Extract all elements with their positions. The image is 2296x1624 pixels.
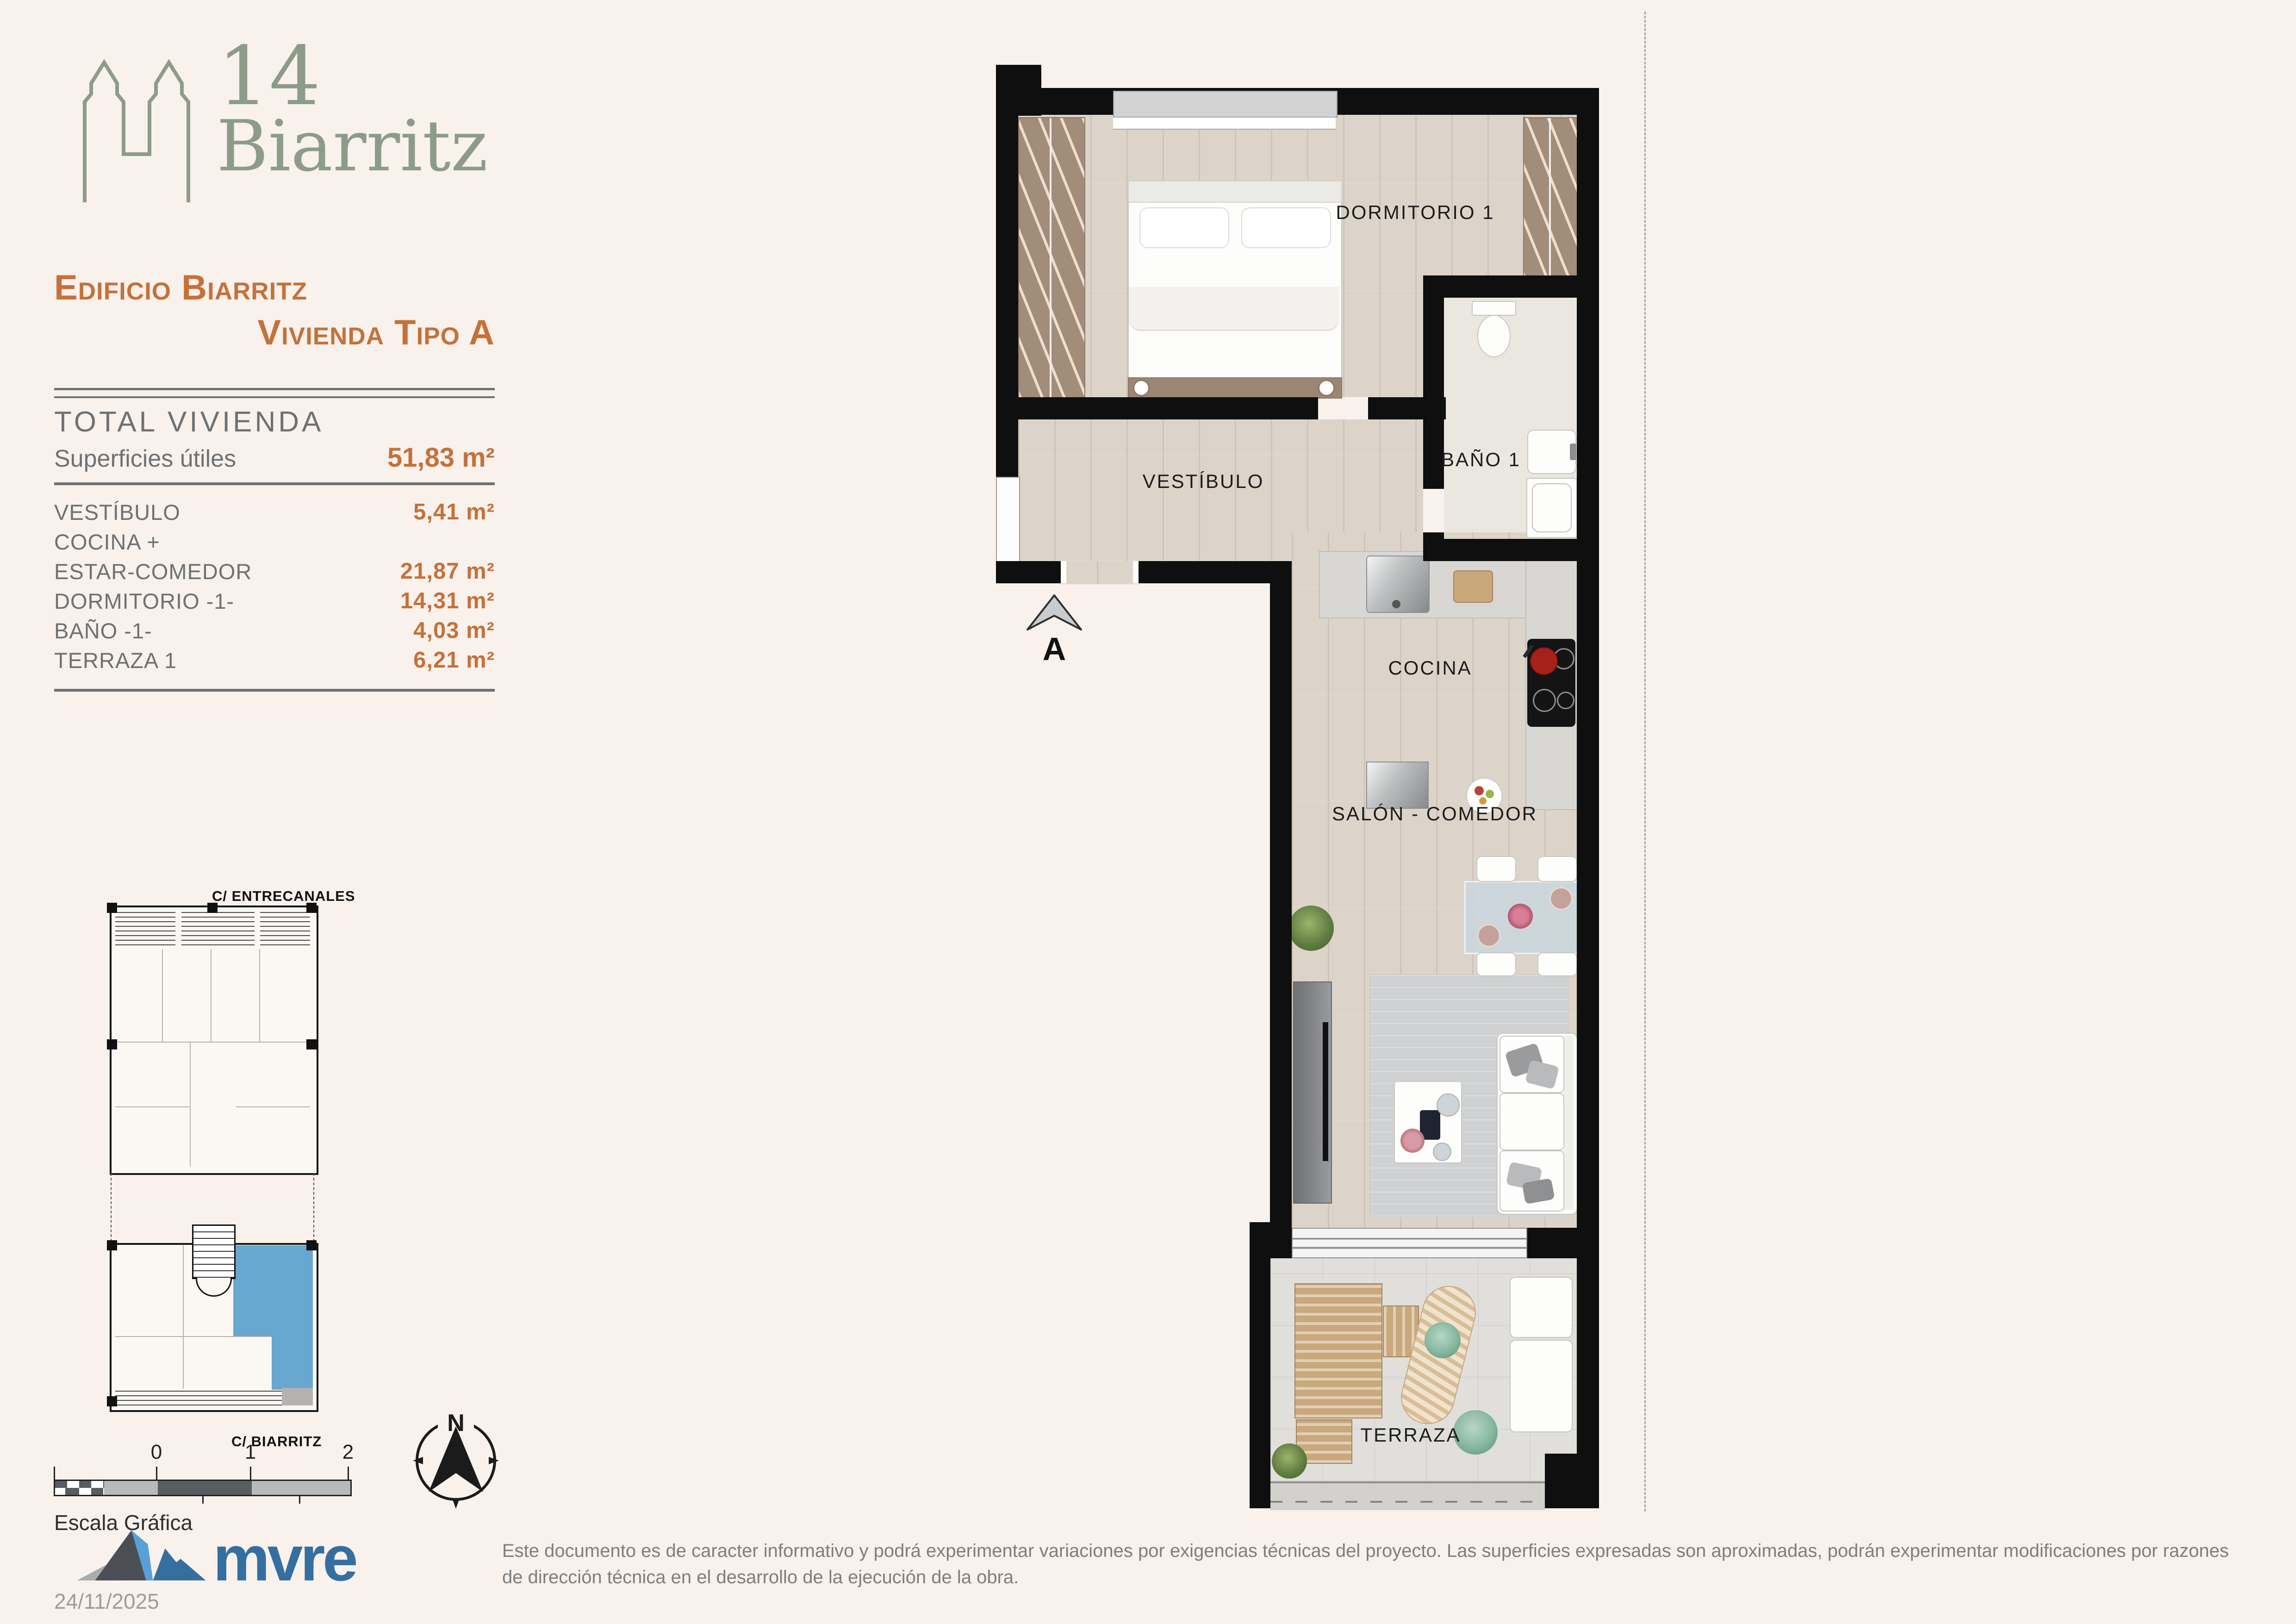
highlighted-unit-a [272,1336,313,1390]
balcony-hatch [115,1388,282,1405]
room-label-bedroom: DORMITORIO 1 [1336,201,1494,224]
mvre-mountain-blue [153,1549,206,1580]
column [107,903,117,913]
table-row: BAÑO -1- 4,03 m² [54,616,495,645]
room-label-living: SALÓN - COMEDOR [1332,803,1537,825]
wall [996,561,1061,583]
row-value: 5,41 m² [413,499,495,525]
terrace-armchair [1510,1340,1573,1432]
partition [115,1042,310,1043]
place-setting [1477,924,1500,947]
room-label-bath: BAÑO 1 [1441,449,1521,471]
mvre-logo: mvre [65,1528,366,1593]
cooktop-burner [1533,689,1556,712]
mvre-logo-text: mvre [213,1528,356,1593]
tv-screen [1323,1022,1328,1161]
wall [1423,532,1444,561]
row-label: BAÑO -1- [54,618,152,643]
highlighted-unit-a [233,1245,313,1336]
column [107,1039,117,1049]
column [207,903,218,913]
sink-faucet [1570,443,1576,460]
entrance-door-jamb [1133,561,1139,583]
room-label-terrace: TERRAZA [1360,1424,1461,1446]
row-value: 21,87 m² [400,558,495,584]
property-boundary-line [1644,12,1646,1512]
partition [190,1042,191,1167]
stairwell [192,1224,236,1279]
wall [1423,275,1577,298]
column [107,1240,117,1250]
sofa-backrest [1563,1036,1574,1210]
column [107,1396,117,1406]
table-row: VESTÍBULO 5,41 m² [54,497,495,527]
table-mid-rule [54,482,495,485]
entrance-door-jamb [1061,561,1066,583]
legal-disclaimer: Este documento es de caracter informativ… [502,1538,2242,1591]
total-label: Superficies útiles [54,445,236,473]
plan-heading: Edificio Biarritz Vivienda Tipo A [54,268,495,353]
partition [236,1106,310,1107]
heading-building: Edificio Biarritz [54,268,495,308]
entrance-arrow-icon [1024,592,1085,632]
wall [1018,397,1318,419]
row-value: 14,31 m² [400,588,495,614]
decor-bowl [1437,1093,1460,1117]
wall [1577,88,1599,1508]
bed-pillow [1241,207,1331,248]
terrace-table [1294,1283,1382,1418]
scale-checker-segment [55,1481,104,1495]
terrace-railing [1270,1481,1545,1510]
place-setting [1549,887,1573,910]
wardrobe-rail [1549,118,1551,279]
toilet-bowl [1477,315,1511,357]
bath-sink [1527,430,1576,474]
fruit [1486,790,1494,798]
balcony-hatch [181,911,255,945]
decor-bowl [1433,1143,1451,1161]
plot-dash [313,1173,314,1242]
brochure-page: 14 Biarritz Edificio Biarritz Vivienda T… [0,0,2296,1624]
wall [1250,1222,1292,1258]
scale-number-0: 0 [151,1441,162,1464]
wardrobe-right [1523,117,1579,280]
wardrobe-left [1018,117,1085,399]
room-label-hall: VESTÍBULO [1143,470,1264,493]
site-upper-block [110,906,318,1175]
scale-segment [158,1481,252,1495]
row-value: 6,21 m² [413,647,495,673]
terrace-sliding-window [1292,1228,1527,1258]
table-rows: VESTÍBULO 5,41 m² COCINA + ESTAR-COMEDOR… [54,497,495,675]
scale-number-2: 2 [342,1441,354,1464]
towers-logo-icon [60,39,213,206]
wall [1250,1258,1270,1508]
dining-chair [1476,952,1516,976]
table-bottom-rule [54,689,495,692]
balcony-hatch [115,911,175,945]
table-top-rule [54,388,495,398]
row-value: 4,03 m² [413,618,495,643]
dining-chair [1537,856,1577,882]
wall [996,88,1018,477]
bed-headboard [1128,181,1342,203]
table-row: COCINA + [54,527,495,556]
partition [162,949,163,1042]
entrance-marker-letter: A [1043,631,1066,668]
bathtub-inner [1532,483,1572,532]
entry-threshold-floor [1061,561,1139,584]
row-label: COCINA + [54,529,160,555]
terrace-armchair [1510,1277,1573,1338]
street-label-top: C/ ENTRECANALES [212,888,355,905]
brand-name: Biarritz [217,111,488,181]
flower-bowl [1400,1129,1425,1153]
partition [183,1245,184,1389]
room-label-kitchen: COCINA [1388,657,1472,679]
table-total-row: Superficies útiles 51,83 m² [54,442,495,473]
table-row: ESTAR-COMEDOR 21,87 m² [54,556,495,586]
north-compass-icon: N [407,1400,504,1512]
row-label: ESTAR-COMEDOR [54,559,252,584]
toilet-tank [1472,301,1516,316]
row-label: TERRAZA 1 [54,648,177,673]
bed-footboard [1128,377,1342,399]
bedroom-window [1113,91,1338,118]
wall [1525,1228,1577,1258]
total-value: 51,83 m² [387,442,495,473]
bed-knob [1318,380,1335,396]
plant-living [1288,906,1334,951]
cooktop-burner [1557,692,1574,709]
scale-bar [54,1480,352,1496]
red-pot [1530,647,1558,675]
table-title: TOTAL VIVIENDA [54,406,495,438]
partition [211,949,212,1042]
column [306,1240,317,1250]
partition [115,1106,189,1107]
row-label: VESTÍBULO [54,500,180,525]
bed-knob [1133,380,1150,396]
wall [1545,1454,1599,1508]
table-row: DORMITORIO -1- 14,31 m² [54,586,495,616]
document-date: 24/11/2025 [54,1589,159,1614]
wall [1270,561,1292,1228]
partition [115,1336,272,1337]
dishwasher [1366,762,1429,809]
scale-segment [252,1481,350,1495]
table-flowers [1508,904,1533,929]
scale-number-1: 1 [245,1441,256,1464]
sofa-cushion [1500,1093,1564,1150]
bed-pillow [1139,207,1229,248]
column [306,1039,317,1049]
wall [1444,539,1577,561]
balcony-hatch [260,911,310,945]
dining-chair [1537,952,1577,976]
heading-unit-type: Vivienda Tipo A [54,312,495,353]
dining-chair [1476,856,1516,882]
plot-dash [111,1173,112,1242]
table-row: TERRAZA 1 6,21 m² [54,645,495,675]
wall [1139,561,1272,583]
balcony-gray [282,1388,313,1405]
terrace-plant [1272,1443,1307,1479]
bedroom-window-sill [1113,117,1336,130]
fruit [1475,786,1484,795]
bed-duvet [1129,287,1339,331]
cutting-board [1453,570,1493,603]
kitchen-faucet [1392,600,1400,608]
partition [259,949,260,1042]
wardrobe-rail [1050,118,1052,398]
entrance-side-door [996,477,1020,568]
row-label: DORMITORIO -1- [54,588,234,614]
areas-table: TOTAL VIVIENDA Superficies útiles 51,83 … [54,388,495,692]
scale-segment [104,1481,158,1495]
column [306,903,317,913]
plant-on-lounger [1425,1322,1461,1358]
